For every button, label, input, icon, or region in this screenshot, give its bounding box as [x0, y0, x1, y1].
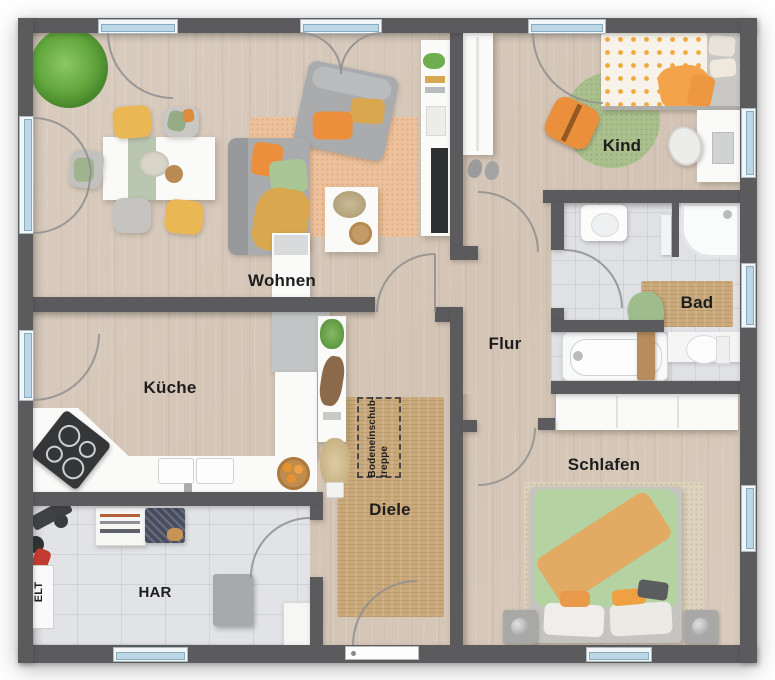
- door-arc-child: [478, 192, 538, 252]
- room-label-child: Kind: [582, 136, 662, 156]
- window-sash-arc-2a: [300, 33, 341, 74]
- door-arc-living-hall: [377, 254, 435, 312]
- room-label-bedroom: Schlafen: [544, 455, 664, 475]
- window-sash-arc-child: [533, 33, 603, 103]
- room-label-bath: Bad: [657, 293, 737, 313]
- door-arc-bedroom: [478, 428, 535, 485]
- room-label-kitchen: Küche: [120, 378, 220, 398]
- door-swing-arcs: [0, 0, 775, 680]
- window-sash-arc-left-a: [33, 118, 91, 176]
- door-arc-utility: [251, 518, 310, 577]
- room-label-hall: Flur: [465, 334, 545, 354]
- room-label-living: Wohnen: [232, 271, 332, 291]
- label-loft-ladder: Bodeneinschub- treppe: [367, 396, 391, 477]
- label-elt: ELT: [33, 582, 45, 603]
- window-sash-arc-left-b: [33, 176, 90, 233]
- room-label-utility: HAR: [115, 584, 195, 601]
- door-arc-bath: [564, 250, 622, 308]
- room-label-foyer: Diele: [350, 500, 430, 520]
- window-sash-arc-2b: [341, 33, 382, 74]
- window-sash-arc-1: [108, 33, 173, 98]
- window-sash-arc-kitchen: [33, 334, 99, 400]
- floorplan-image: Wohnen Küche Kind Bad Flur Diele Schlafe…: [0, 0, 775, 680]
- door-arc-entrance: [353, 581, 417, 645]
